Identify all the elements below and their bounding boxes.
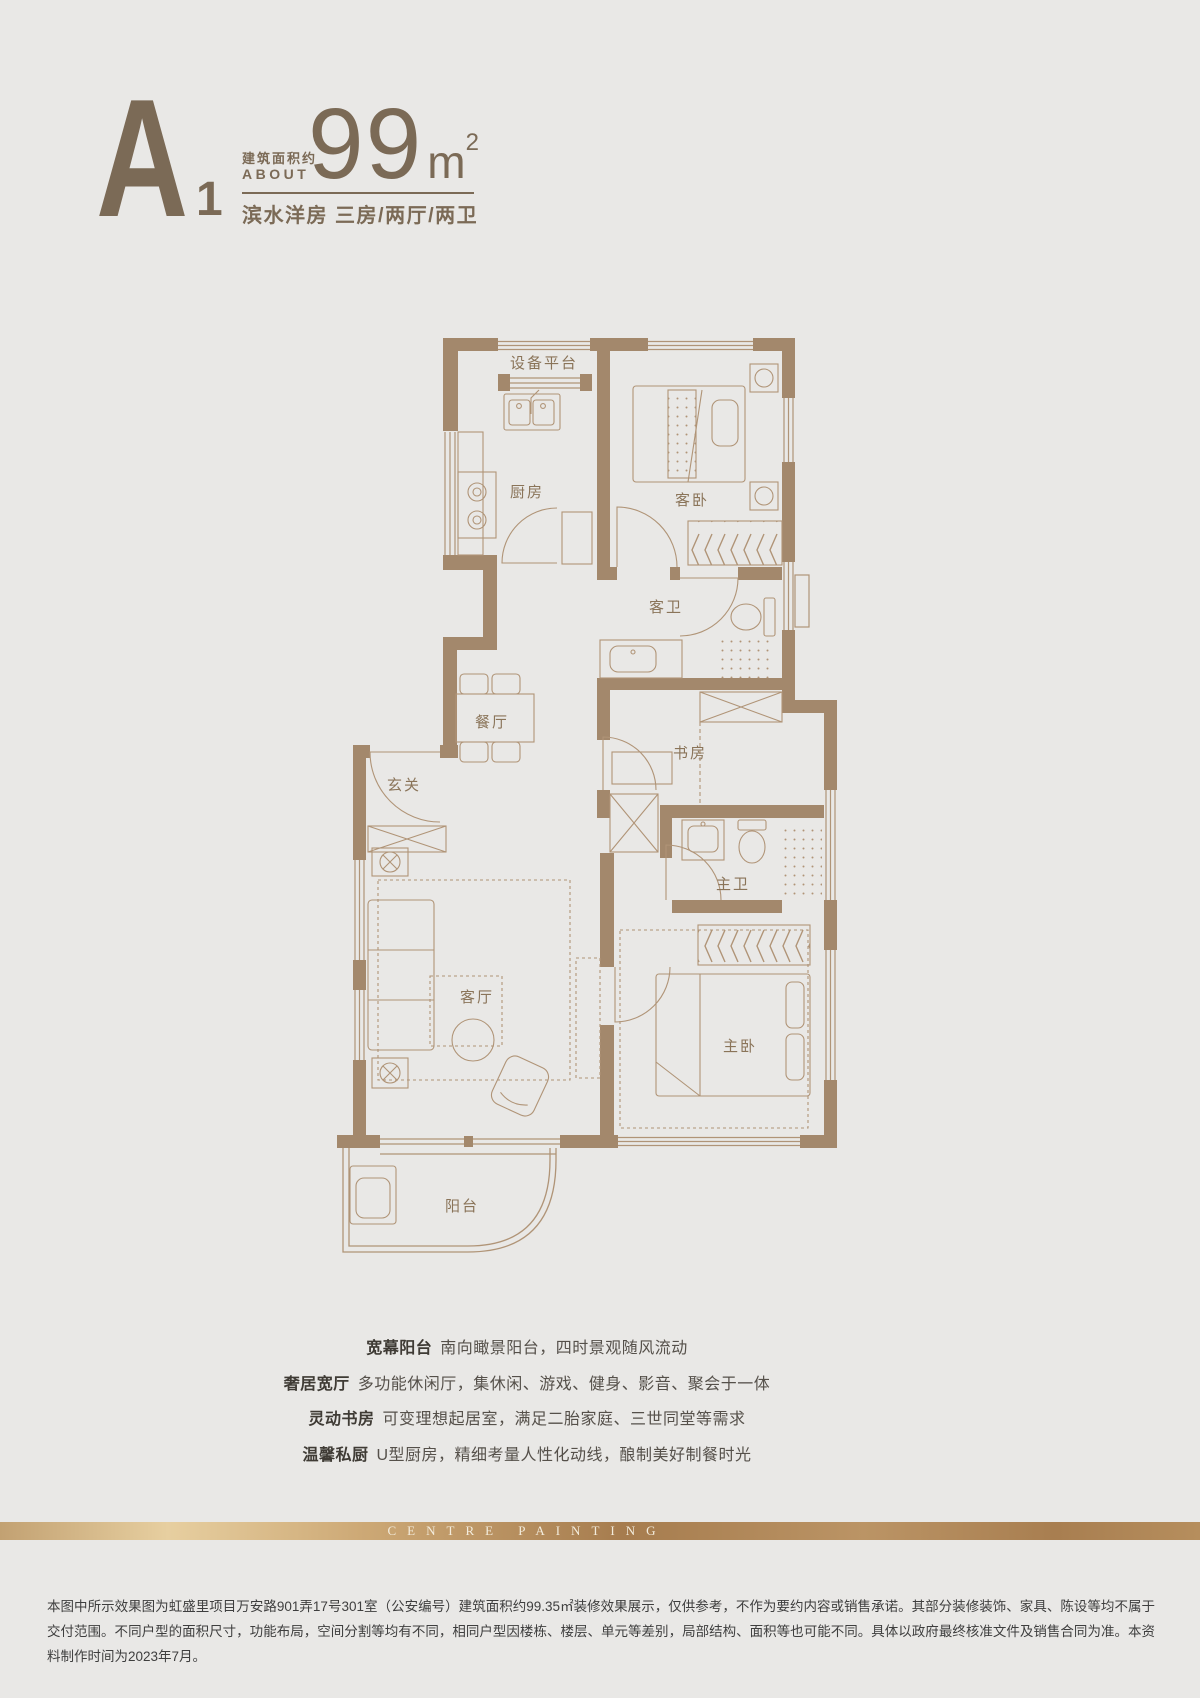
guest-bed-icon [633,386,745,482]
feature-line: 灵动书房可变理想起居室，满足二胎家庭、三世同堂等需求 [0,1402,1054,1438]
unit-subtitle: 滨水洋房 三房/两厅/两卫 [242,199,478,228]
ac-unit-icon-2 [372,1058,408,1088]
feature-line: 温馨私厨U型厨房，精细考量人性化动线，酿制美好制餐时光 [0,1438,1054,1474]
master-shower-area [780,824,822,896]
master-bed-icon [656,974,810,1096]
kitchen-counter [458,432,483,555]
feature-desc: U型厨房，精细考量人性化动线，酿制美好制餐时光 [376,1447,751,1464]
room-label-balcony: 阳台 [445,1198,479,1215]
feature-desc: 多功能休闲厅，集休闲、游戏、健身、影音、聚会于一体 [358,1376,771,1393]
feature-title: 奢居宽厅 [284,1376,350,1393]
washer-icon [350,1166,396,1224]
area-label-cn: 建筑面积约 [242,148,317,167]
study-desk-icon [612,752,672,784]
floorplan: 设备平台 厨房 客卧 客卫 餐厅 玄关 书房 主卫 客厅 主卧 阳台 [330,330,850,1280]
feature-title: 灵动书房 [308,1411,374,1428]
rug-dashed [430,976,502,1046]
area-label-en: ABOUT [242,166,309,182]
poster-page: { "page": { "background": "#e9e8e6" }, "… [0,0,1200,1698]
room-label-kitchen: 厨房 [510,484,544,501]
feature-desc: 南向瞰景阳台，四时景观随风流动 [440,1340,688,1357]
disclaimer-text: 本图中所示效果图为虹盛里项目万安路901弄17号301室（公安编号）建筑面积约9… [47,1594,1155,1669]
master-bedroom-door-arc [615,967,670,1022]
room-label-master-bedroom: 主卧 [723,1038,757,1055]
master-toilet-icon [738,820,766,863]
guest-shower-area [715,640,770,678]
room-label-living: 客厅 [460,989,494,1006]
room-label-guest-bedroom: 客卧 [675,492,709,509]
room-label-foyer: 玄关 [387,777,421,794]
walls [337,338,837,1148]
feature-title: 宽幕阳台 [366,1340,432,1357]
area-unit: m2 [427,129,479,189]
tv-cabinet-icon [576,958,600,1078]
feature-list: 宽幕阳台南向瞰景阳台，四时景观随风流动 奢居宽厅多功能休闲厅，集休闲、游戏、健身… [0,1331,1054,1473]
kitchen-sink-icon [504,390,560,430]
brand-band-text: CENTRE PAINTING [0,1522,1054,1540]
room-label-study: 书房 [673,745,707,762]
room-label-dining: 餐厅 [475,714,509,731]
study-closet-icon [700,692,782,722]
room-label-master-bath: 主卫 [716,876,750,893]
lounge-chair-icon [488,1053,552,1120]
feature-desc: 可变理想起居室，满足二胎家庭、三世同堂等需求 [383,1411,746,1428]
door-arcs [370,507,738,1022]
master-wardrobe-icon [698,925,810,965]
guest-nightstand-icon [750,364,778,510]
feature-line: 奢居宽厅多功能休闲厅，集休闲、游戏、健身、影音、聚会于一体 [0,1367,1054,1403]
feature-title: 温馨私厨 [302,1447,368,1464]
hall-cabinet-icon [610,794,658,852]
brand-band: CENTRE PAINTING [0,1522,1200,1540]
unit-header: A 1 建筑面积约 ABOUT 99 m2 滨水洋房 三房/两厅/两卫 [96,88,556,238]
kitchen-door-arc [502,508,557,563]
coffee-table-icon [452,1019,494,1061]
room-labels: 设备平台 厨房 客卧 客卫 餐厅 玄关 书房 主卫 客厅 主卧 阳台 [387,355,757,1215]
guest-toilet-icon [731,598,775,636]
master-sink-icon [682,820,724,860]
fridge-icon [562,512,592,564]
room-label-guest-bath: 客卫 [649,599,683,616]
guest-sink-icon [600,640,682,678]
floorplan-svg: 设备平台 厨房 客卧 客卫 餐厅 玄关 书房 主卫 客厅 主卧 阳台 [330,330,850,1280]
windows [355,342,835,1148]
unit-letter: A [96,74,188,242]
area-value: 99 m2 [308,96,479,192]
master-bath-door-arc [666,845,721,900]
feature-line: 宽幕阳台南向瞰景阳台，四时景观随风流动 [0,1331,1054,1367]
stove-icon [458,472,496,538]
guest-bedroom-door-arc [617,507,677,567]
study-door-arc [603,737,656,790]
unit-index: 1 [196,176,223,224]
room-label-equipment: 设备平台 [510,355,578,372]
furniture [350,364,822,1224]
guest-wardrobe-icon [688,521,782,565]
area-number: 99 [308,96,423,192]
header-divider [242,192,474,194]
guest-bath-door-arc [680,578,738,636]
